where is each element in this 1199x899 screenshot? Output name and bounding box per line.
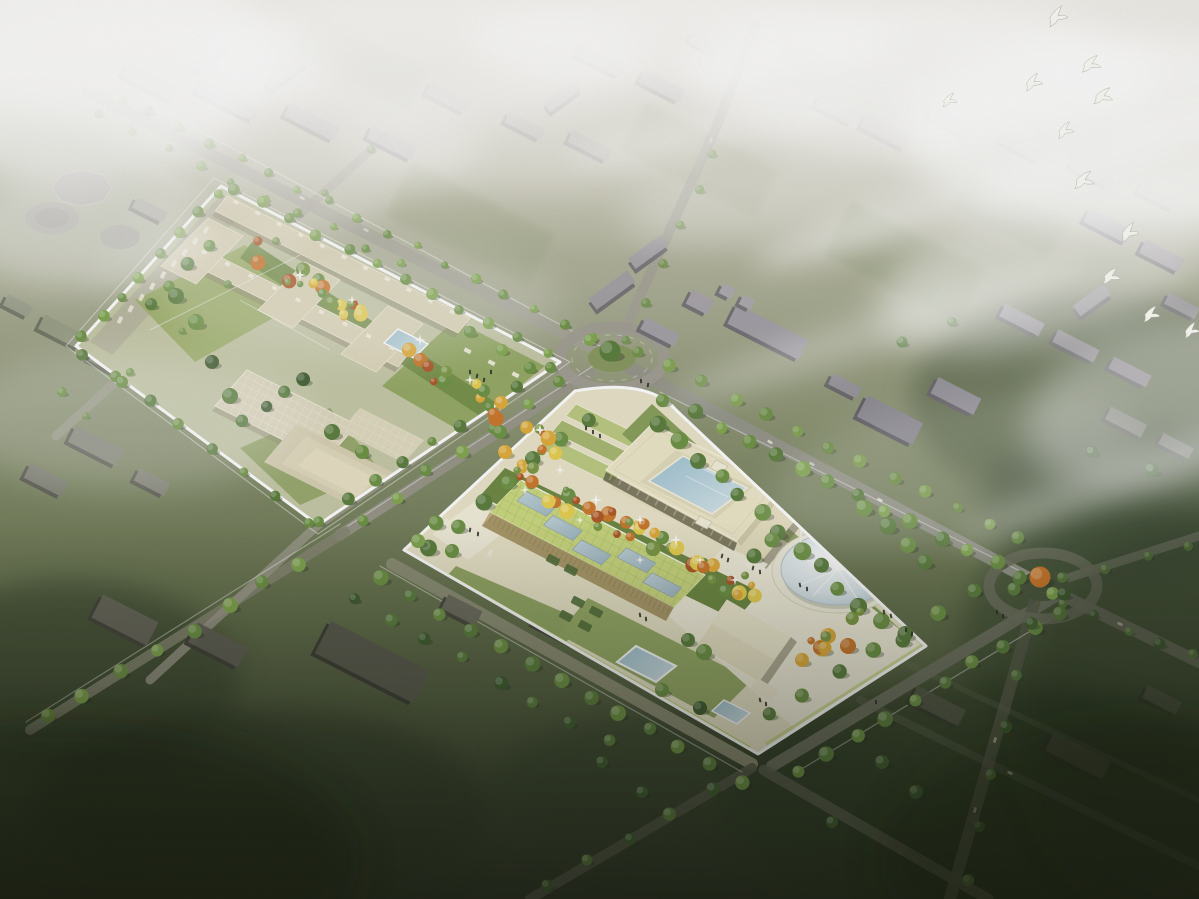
aerial-rendering-canvas [0, 0, 1199, 899]
aerial-rendering-stage [0, 0, 1199, 899]
film-grain [0, 0, 1199, 899]
